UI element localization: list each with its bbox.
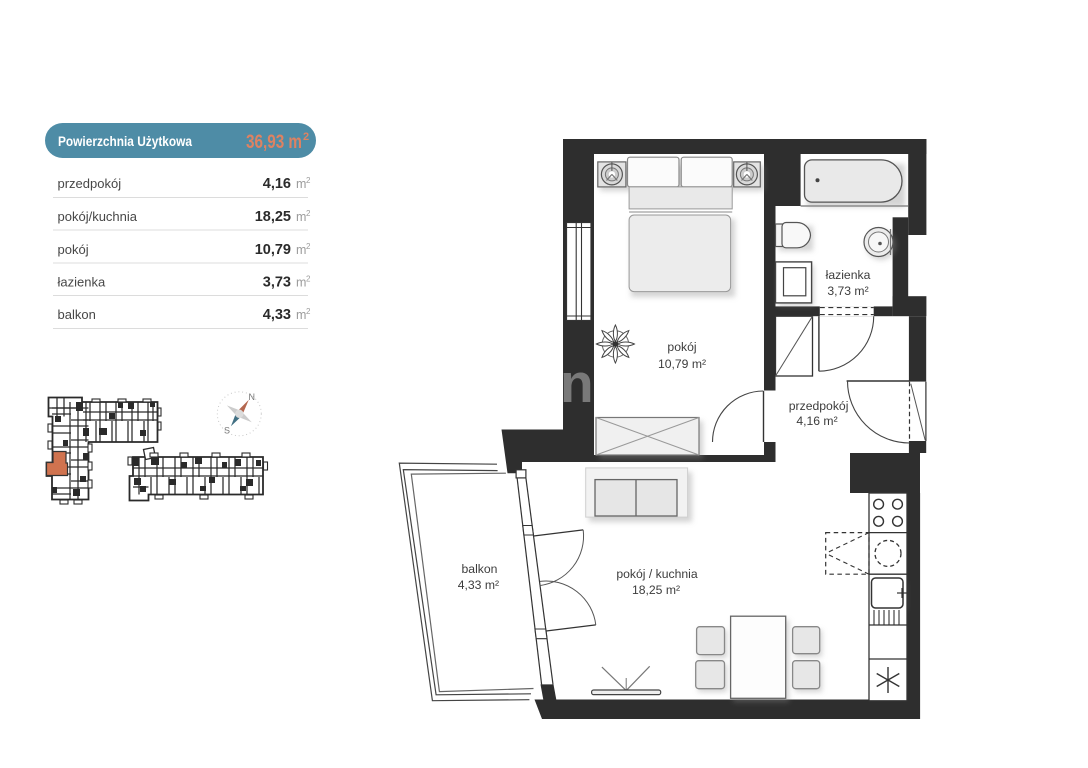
svg-text:N: N [249,392,256,402]
svg-text:2: 2 [306,275,311,284]
svg-text:m: m [296,308,306,322]
svg-text:m: m [296,177,306,191]
svg-text:pokój: pokój [667,340,696,354]
svg-text:pokój: pokój [58,242,89,257]
svg-text:Powierzchnia Użytkowa: Powierzchnia Użytkowa [58,134,192,149]
svg-text:36,93 m: 36,93 m [246,132,302,153]
svg-text:18,25: 18,25 [255,209,291,225]
svg-text:m: m [296,276,306,290]
svg-text:balkon: balkon [462,562,498,576]
svg-text:przedpokój: przedpokój [789,399,849,413]
svg-text:no: no [560,352,627,414]
svg-text:2: 2 [306,209,311,218]
svg-text:przedpokój: przedpokój [58,176,122,191]
svg-text:10,79: 10,79 [255,242,291,258]
svg-text:4,16 m²: 4,16 m² [796,414,837,428]
svg-text:2: 2 [306,307,311,316]
svg-text:m: m [296,210,306,224]
svg-text:S: S [224,426,230,436]
svg-text:10,79 m²: 10,79 m² [658,357,706,371]
svg-text:3,73 m²: 3,73 m² [827,284,868,298]
svg-text:18,25 m²: 18,25 m² [632,583,680,597]
svg-text:2: 2 [306,176,311,185]
svg-text:2: 2 [306,242,311,251]
svg-text:łazienka: łazienka [826,268,871,282]
svg-text:4,16: 4,16 [263,176,291,192]
svg-text:2: 2 [303,131,309,143]
svg-text:balkon: balkon [58,307,96,322]
svg-text:3,73: 3,73 [263,275,291,291]
svg-text:4,33: 4,33 [263,307,291,323]
svg-text:pokój/kuchnia: pokój/kuchnia [58,209,138,224]
svg-text:4,33 m²: 4,33 m² [458,578,499,592]
svg-text:pokój / kuchnia: pokój / kuchnia [616,567,698,581]
svg-text:m: m [296,243,306,257]
svg-text:łazienka: łazienka [58,275,106,290]
